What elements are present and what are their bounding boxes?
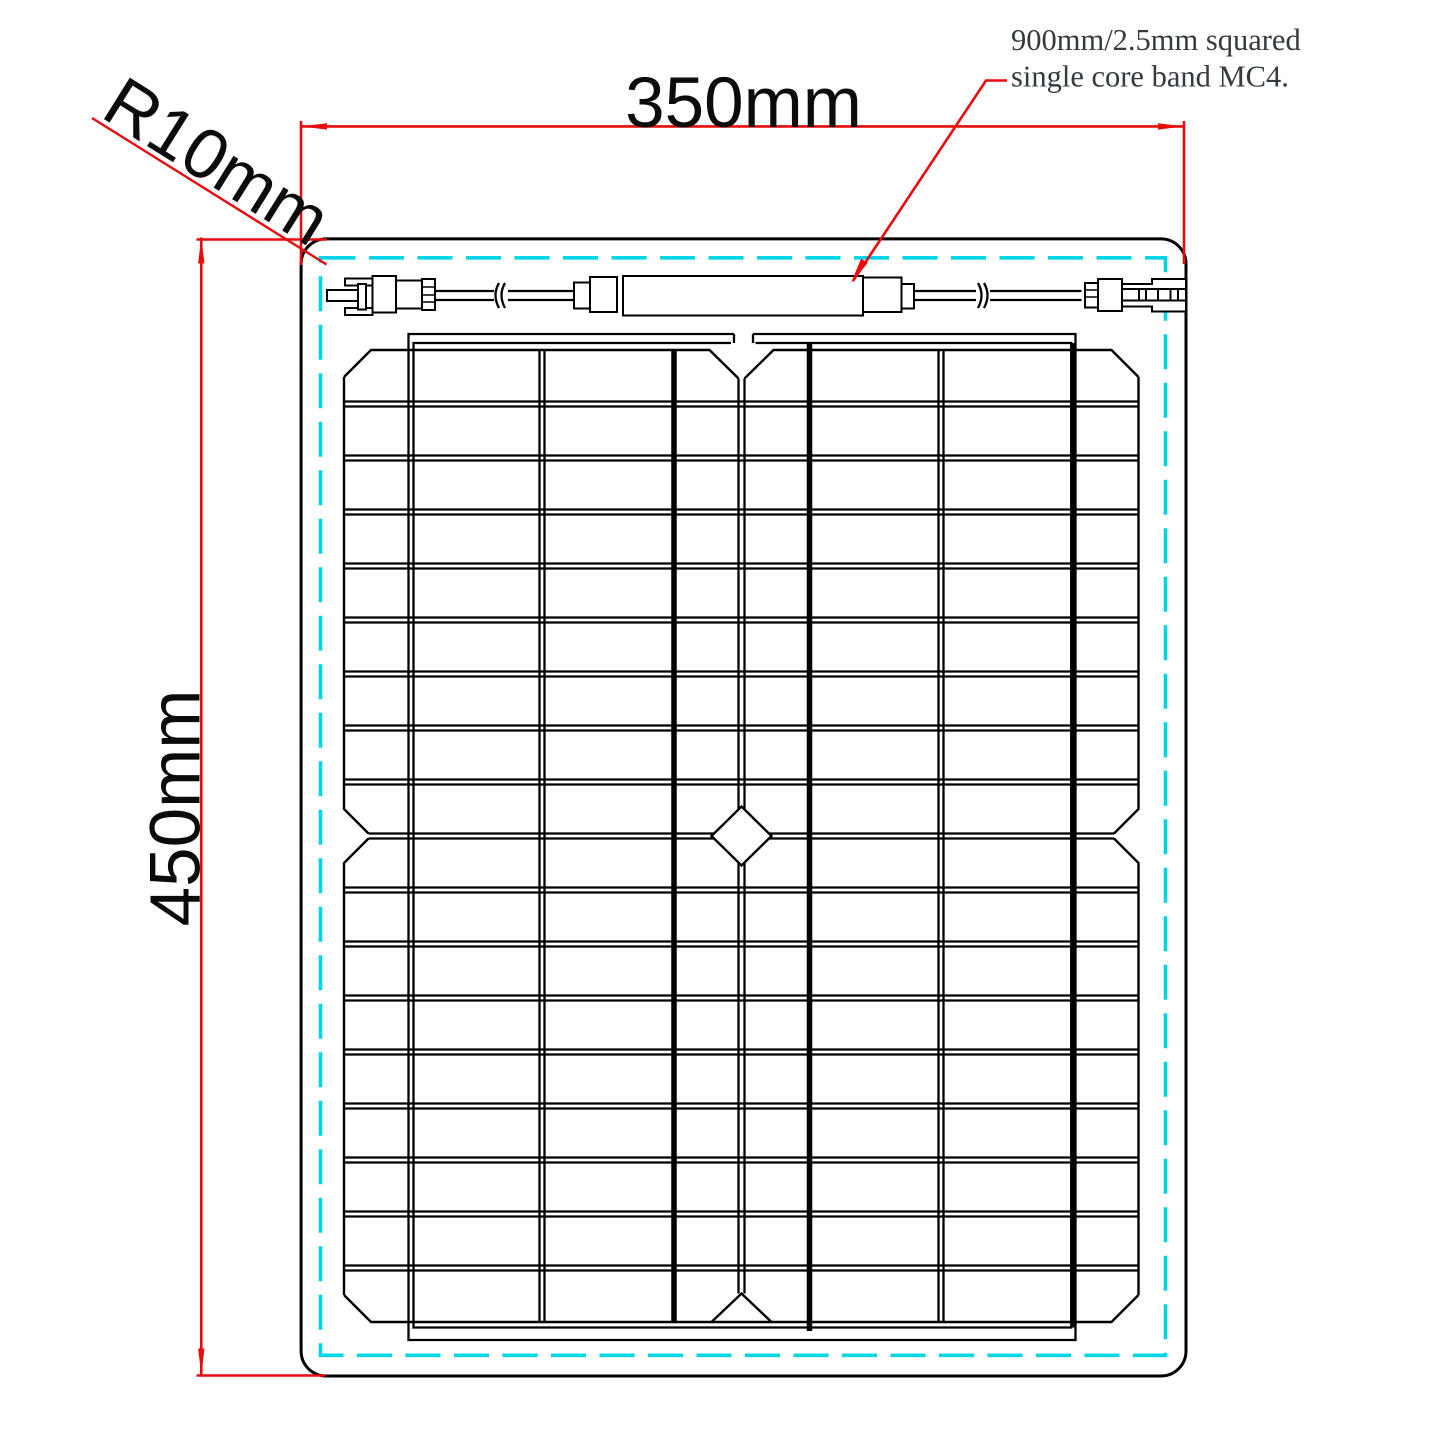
svg-text:450mm: 450mm (137, 690, 216, 927)
svg-text:900mm/2.5mm squared: 900mm/2.5mm squared (1011, 23, 1301, 57)
svg-text:350mm: 350mm (625, 64, 862, 143)
svg-text:single core band MC4.: single core band MC4. (1011, 60, 1289, 94)
